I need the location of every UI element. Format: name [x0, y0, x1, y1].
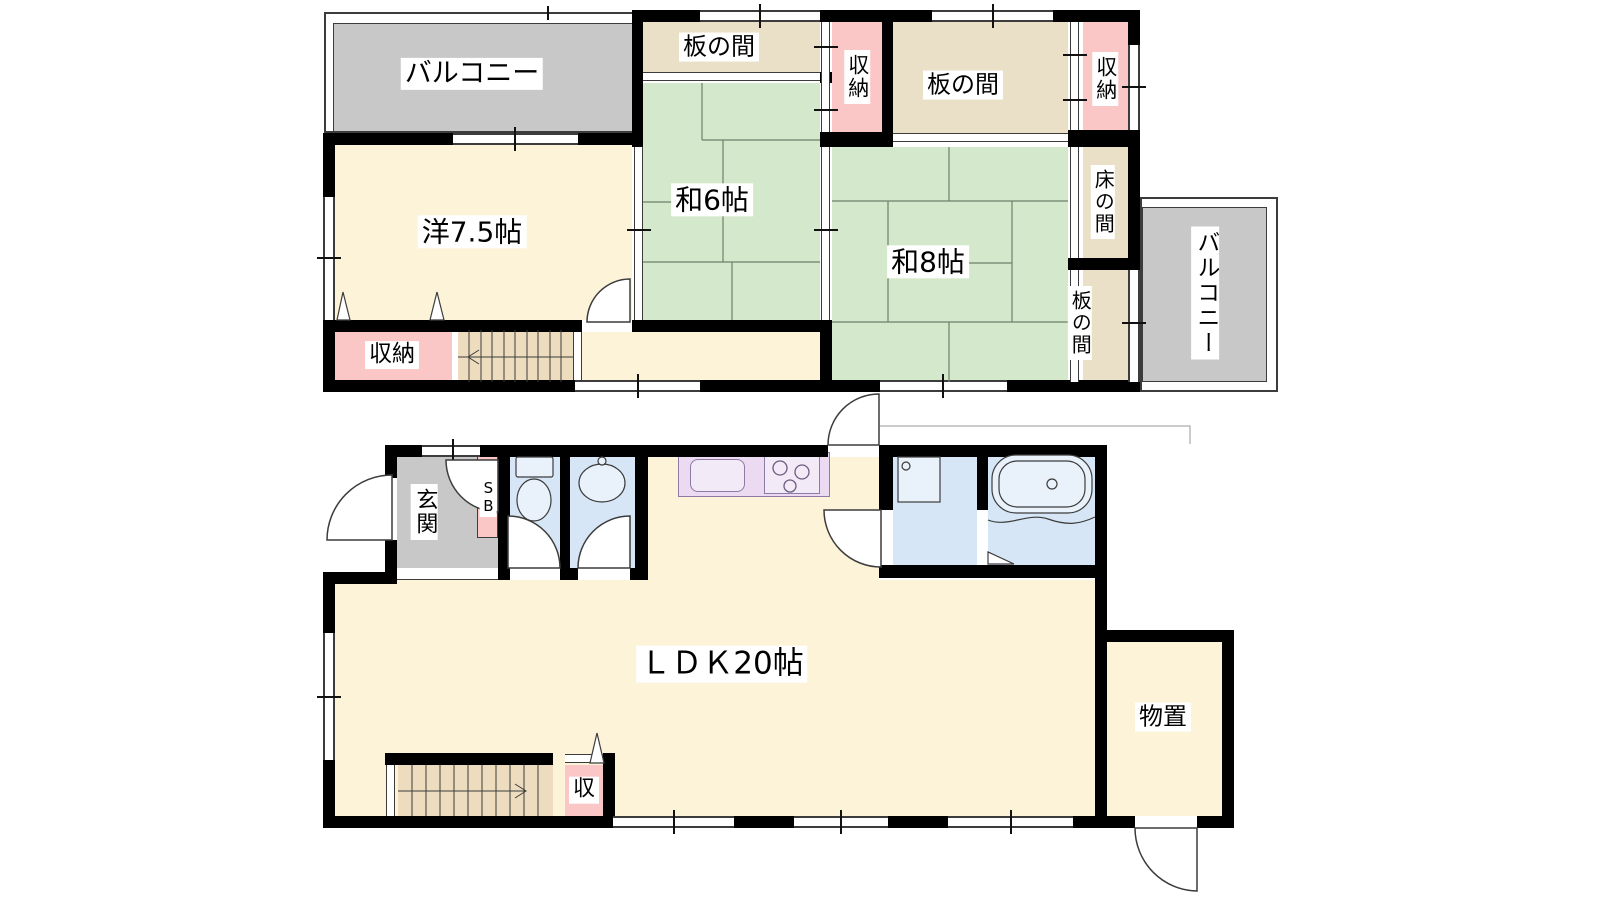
room-label-itanoma-top: 板の間 [679, 33, 759, 62]
room-washbasin [570, 452, 635, 568]
room-label-western: 洋7.5帖 [418, 215, 527, 248]
kitchen-sink [690, 459, 745, 492]
genkan-step [397, 568, 498, 580]
room-label-itanoma-side: 板の間 [1068, 286, 1092, 360]
door-kitchen-back [828, 394, 879, 445]
room-toilet [510, 452, 560, 568]
room-label-balcony-right: バルコニー [1191, 227, 1219, 360]
hallway-2f [573, 332, 823, 380]
door-monooki [1135, 828, 1197, 891]
stove-fixture [764, 456, 820, 494]
room-label-tatami8: 和8帖 [887, 245, 969, 278]
room-label-closet-right: 収納 [1092, 52, 1118, 106]
room-label-shoebox: SB [480, 477, 497, 517]
room-label-monooki: 物置 [1135, 703, 1191, 732]
balcony-tick [547, 6, 549, 20]
room-label-genkan: 玄関 [411, 484, 438, 540]
stairs-1f [398, 765, 553, 816]
floor-plan-canvas: バルコニー 板の間 収納 板の間 収納 洋7.5帖 和6帖 和8帖 床の間 板の… [0, 0, 1600, 900]
room-bath [988, 452, 1095, 565]
room-label-closet-mid: 収納 [844, 50, 870, 104]
room-label-tokonoma: 床の間 [1091, 165, 1115, 239]
room-washroom [893, 452, 977, 565]
room-label-balcony-2f: バルコニー [401, 58, 543, 90]
door-front-entrance [327, 475, 392, 540]
room-label-closet-bottom: 収納 [365, 341, 419, 369]
room-label-ldk: ＬＤＫ20帖 [636, 646, 807, 683]
room-label-tatami6: 和6帖 [671, 183, 753, 216]
stairs-2f [458, 330, 573, 382]
room-label-closet-1f: 収 [569, 777, 599, 804]
room-label-itanoma-right: 板の間 [923, 71, 1003, 100]
